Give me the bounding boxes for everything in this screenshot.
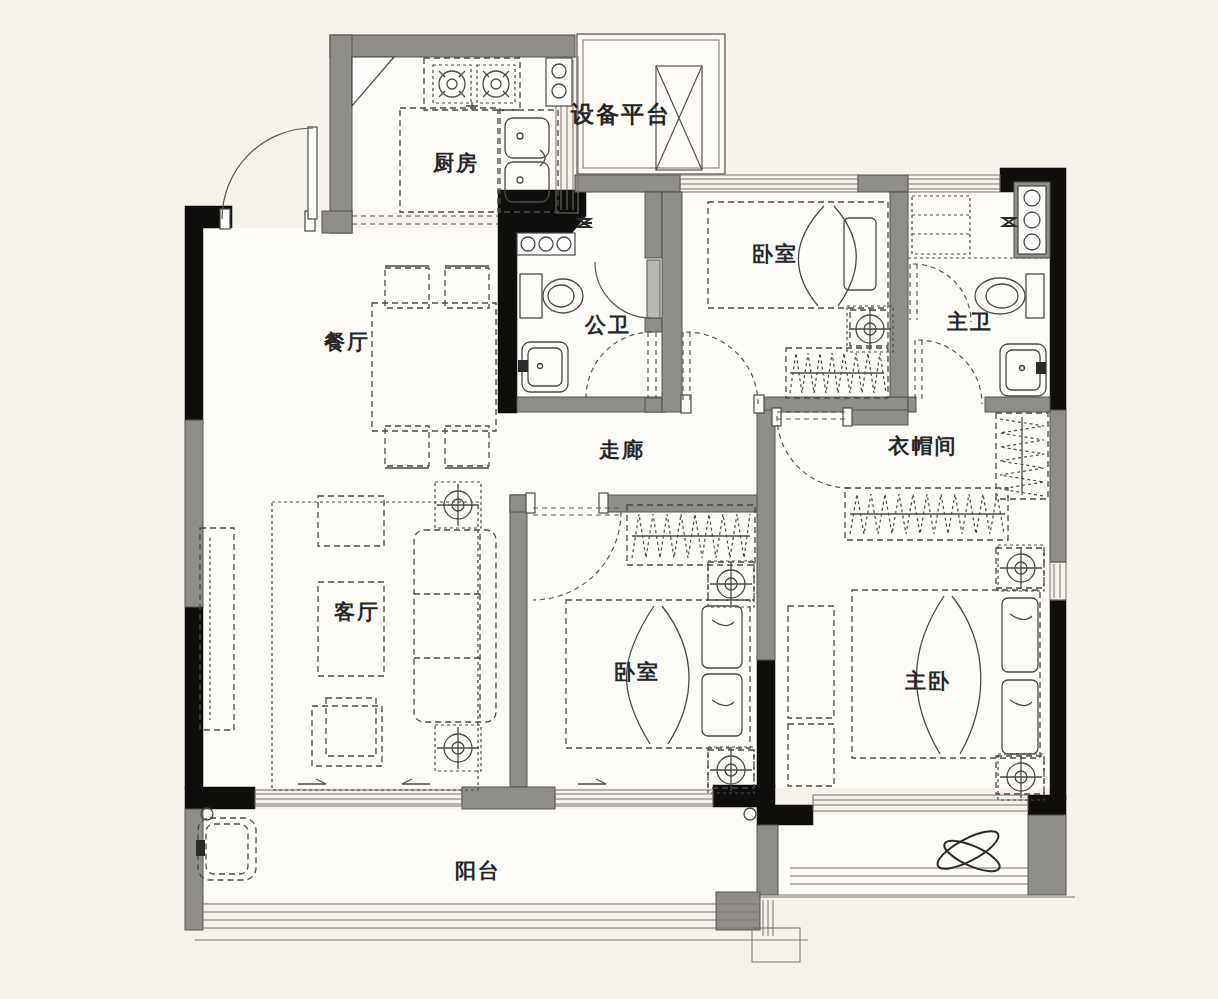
label-living: 客厅 xyxy=(333,600,380,623)
label-equipment-platform: 设备平台 xyxy=(570,101,671,127)
entrance-door xyxy=(220,127,317,231)
label-bedroom-north: 卧室 xyxy=(752,242,798,265)
label-dining: 餐厅 xyxy=(323,330,370,353)
label-kitchen: 厨房 xyxy=(432,151,479,174)
window-master-south xyxy=(813,795,1028,811)
balcony-railing xyxy=(203,904,758,928)
floor-plan: 厨房 设备平台 餐厅 公卫 卧室 主卫 走廊 衣帽间 客厅 卧室 主卧 阳台 xyxy=(0,0,1218,999)
label-balcony: 阳台 xyxy=(455,859,501,882)
label-bedroom-south: 卧室 xyxy=(614,660,660,683)
floor-plan-drawing: 厨房 设备平台 餐厅 公卫 卧室 主卫 走廊 衣帽间 客厅 卧室 主卧 阳台 xyxy=(0,0,1218,999)
window-master-bath xyxy=(908,175,1000,192)
label-public-bath: 公卫 xyxy=(584,313,631,336)
label-master-bath: 主卫 xyxy=(946,310,993,333)
window-master-east xyxy=(1050,562,1066,600)
label-master-bedroom: 主卧 xyxy=(904,669,951,692)
ground-line xyxy=(195,897,1075,940)
label-cloakroom: 衣帽间 xyxy=(888,434,958,457)
kitchen-sliding-door xyxy=(352,216,498,224)
range-hood-icon xyxy=(546,58,572,106)
label-corridor: 走廊 xyxy=(598,438,645,461)
pipe-box xyxy=(752,928,800,962)
window-bedroom-north xyxy=(680,175,858,192)
pipes xyxy=(763,900,773,936)
